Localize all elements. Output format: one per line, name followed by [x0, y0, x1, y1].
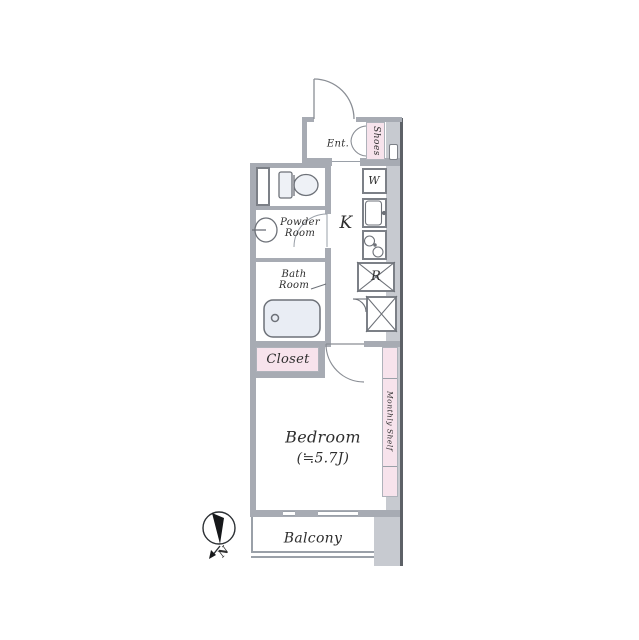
balcony-label: Balcony: [284, 531, 342, 546]
kitchen-label: K: [339, 214, 352, 232]
wall-sanitary-right-a: [325, 163, 331, 214]
kitchen-sink-box: [362, 198, 387, 228]
stove-box: [362, 230, 387, 260]
shelf-label: Monthly Shelf: [386, 391, 395, 451]
powder-room-label-line2: Room: [280, 229, 320, 240]
shoe-cabinet-doors-icon: [351, 126, 366, 156]
bedroom-door-icon: [326, 344, 364, 382]
balcony-bottom-rail-outer: [251, 551, 374, 553]
entrance-door-icon: [314, 79, 354, 119]
shoes-label: Shoes: [371, 126, 381, 156]
shelf-divider-top: [383, 378, 397, 379]
washer-label: W: [368, 175, 380, 187]
bedroom-label: Bedroom: [285, 428, 361, 445]
compass-north-label: N: [216, 544, 232, 560]
bath-room-label: Bath Room: [279, 270, 309, 292]
bedroom-window-large: [318, 511, 358, 516]
pipe-shaft-box: [366, 296, 397, 332]
entrance-step-line: [332, 161, 360, 162]
balcony-left-rail: [251, 517, 253, 551]
wall-outer-left: [250, 163, 256, 517]
refrigerator-label: R: [371, 270, 381, 284]
bedroom-size-label: (≒5.7J): [297, 451, 350, 466]
bathtub-icon: [264, 300, 320, 337]
wall-powder-bath-divider: [256, 258, 325, 262]
entrance-label: Ent.: [327, 140, 349, 151]
shelf-divider-bottom: [383, 466, 397, 467]
floor-plan: Ent. Shoes Powder Room Bath Room K W R C…: [0, 0, 639, 640]
pipe-space-cell: [256, 167, 270, 206]
bath-room-label-line2: Room: [279, 281, 309, 292]
wall-ent-left: [302, 117, 307, 163]
closet-label: Closet: [266, 353, 309, 367]
wall-sanitary-right-b: [325, 248, 331, 347]
powder-room-label: Powder Room: [280, 218, 320, 240]
bath-leader-line: [311, 284, 326, 289]
bedroom-window-small: [283, 511, 295, 516]
wall-closet-bottom: [250, 372, 325, 378]
wall-toilet-powder-divider: [256, 206, 325, 210]
outer-wall-right-edge: [400, 118, 403, 566]
balcony-bottom-rail-inner: [251, 556, 374, 558]
meter-box-notch: [389, 144, 398, 160]
wall-closet-right: [319, 341, 325, 378]
outer-wall-balcony-block: [374, 512, 400, 566]
toilet-icon: [279, 172, 318, 198]
